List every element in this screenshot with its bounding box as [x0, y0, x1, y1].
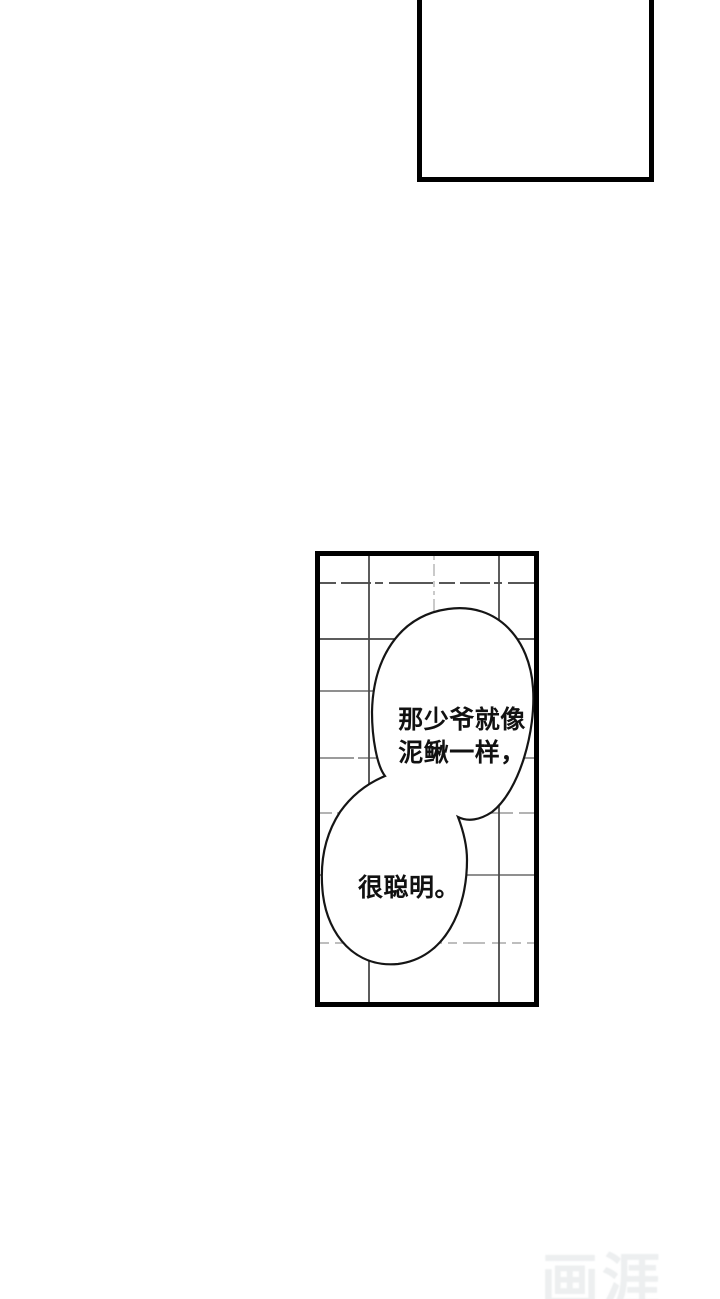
- bubble2-line: 很聪明。: [339, 871, 479, 904]
- comic-page: 那少爷就像 泥鳅一样， 很聪明。 画涯: [0, 0, 720, 1299]
- bubble1-line1: 那少爷就像: [382, 703, 539, 736]
- watermark-logo: 画涯: [541, 1250, 663, 1299]
- bubble1-text: 那少爷就像 泥鳅一样，: [382, 703, 539, 769]
- panel-artwork-svg: [320, 556, 534, 1002]
- bubble2-text: 很聪明。: [339, 871, 479, 904]
- speech-bubbles-shape: [322, 608, 534, 964]
- empty-top-panel: [417, 0, 654, 182]
- comic-panel: 那少爷就像 泥鳅一样， 很聪明。: [315, 551, 539, 1007]
- bubble1-line2: 泥鳅一样，: [382, 736, 539, 769]
